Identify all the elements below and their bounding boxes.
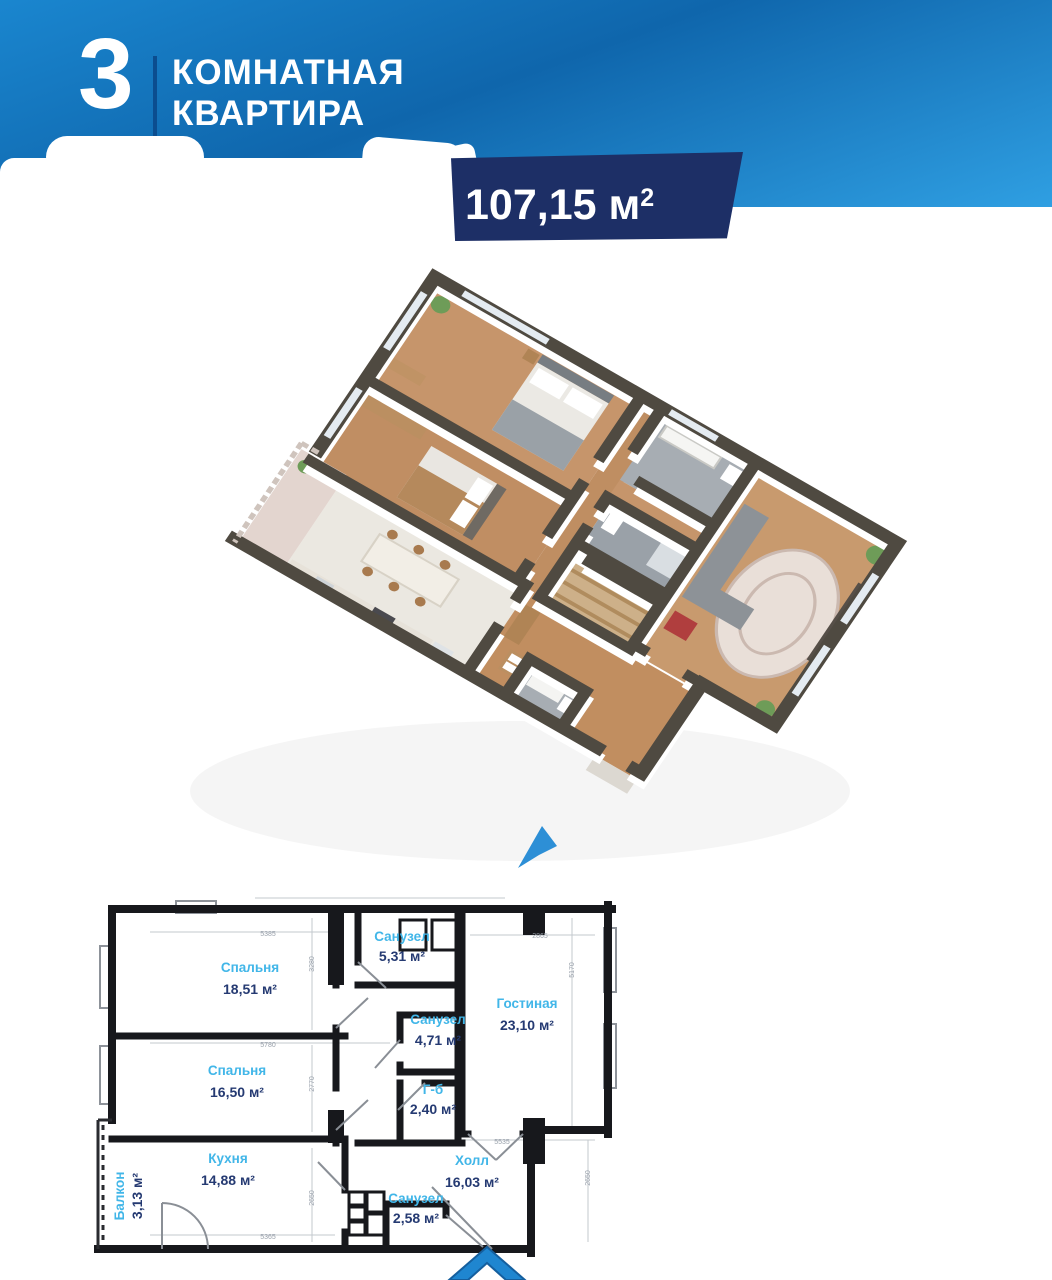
dimension-label: 5170: [569, 962, 576, 978]
redaction-blob-bump: [46, 136, 204, 178]
svg-text:16,50 м²: 16,50 м²: [210, 1084, 264, 1100]
svg-text:18,51 м²: 18,51 м²: [223, 981, 277, 997]
svg-text:14,88 м²: 14,88 м²: [201, 1172, 255, 1188]
header-divider: [153, 56, 157, 140]
svg-text:Санузел: Санузел: [374, 929, 430, 944]
rooms-count: 3: [78, 24, 134, 124]
room-label-hall: Холл 16,03 м²: [445, 1153, 499, 1190]
svg-text:Гостиная: Гостиная: [496, 996, 557, 1011]
plan-3d: [90, 246, 970, 894]
svg-text:Спальня: Спальня: [208, 1063, 266, 1078]
plan-2d: Спальня 18,51 м² Спальня 16,50 м² Санузе…: [55, 885, 655, 1280]
svg-text:3,13 м²: 3,13 м²: [129, 1173, 145, 1219]
dimension-label: 2770: [309, 1076, 316, 1092]
room-label-bathroom-3: Санузел 2,58 м²: [388, 1191, 444, 1226]
svg-text:Балкон: Балкон: [112, 1172, 127, 1221]
title-line2: КВАРТИРА: [172, 93, 405, 134]
svg-text:5,31 м²: 5,31 м²: [379, 948, 425, 964]
dimension-label: 2650: [309, 1190, 316, 1206]
room-label-living: Гостиная 23,10 м²: [496, 996, 557, 1033]
svg-text:2,40 м²: 2,40 м²: [410, 1101, 456, 1117]
dimension-label: 5385: [260, 931, 276, 938]
ground-shadow: [190, 721, 850, 861]
svg-text:Спальня: Спальня: [221, 960, 279, 975]
svg-text:Кухня: Кухня: [208, 1151, 247, 1166]
room-label-bedroom-1: Спальня 18,51 м²: [221, 960, 279, 997]
room-label-wardrobe: Г-б 2,40 м²: [410, 1082, 456, 1117]
area-value: 107,15 м2: [465, 152, 654, 241]
dimension-label: 2650: [585, 1170, 592, 1186]
dimension-label: 5535: [494, 1139, 510, 1146]
dimension-label: 5365: [260, 1234, 276, 1241]
svg-text:2,58 м²: 2,58 м²: [393, 1210, 439, 1226]
svg-text:Санузел: Санузел: [388, 1191, 444, 1206]
superscript-2: 2: [640, 184, 654, 212]
dimension-label: 5780: [260, 1042, 276, 1049]
svg-text:4,71 м²: 4,71 м²: [415, 1032, 461, 1048]
flyer-page: 3 КОМНАТНАЯ КВАРТИРА 107,15 м2: [0, 0, 1052, 1280]
title-line1: КОМНАТНАЯ: [172, 52, 405, 93]
door-leaves: [162, 962, 523, 1249]
room-label-balcony: Балкон 3,13 м²: [112, 1172, 145, 1221]
room-label-kitchen: Кухня 14,88 м²: [201, 1151, 255, 1188]
dimension-label: 3280: [309, 956, 316, 972]
svg-text:23,10 м²: 23,10 м²: [500, 1017, 554, 1033]
dimension-label: 2865: [532, 933, 548, 940]
svg-text:Санузел: Санузел: [410, 1012, 466, 1027]
area-badge: 107,15 м2: [451, 152, 743, 241]
svg-text:Холл: Холл: [455, 1153, 489, 1168]
room-label-bedroom-2: Спальня 16,50 м²: [208, 1063, 266, 1100]
svg-text:16,03 м²: 16,03 м²: [445, 1174, 499, 1190]
page-title: КОМНАТНАЯ КВАРТИРА: [172, 52, 405, 134]
inner-walls: [112, 909, 531, 1249]
svg-text:Г-б: Г-б: [423, 1082, 444, 1097]
